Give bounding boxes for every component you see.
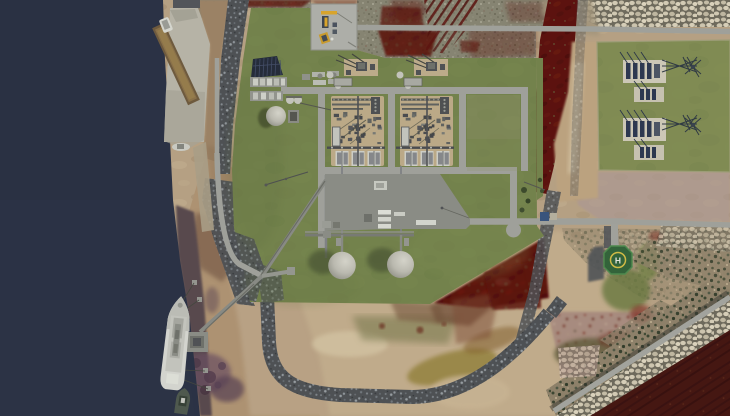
svg-text:H: H — [615, 256, 621, 266]
